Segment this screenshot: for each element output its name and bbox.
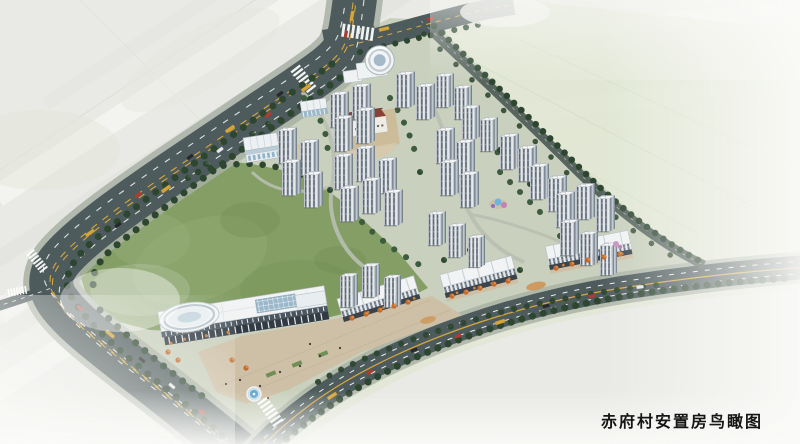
tower-cluster-center bbox=[334, 146, 403, 227]
tower-cluster-top-left bbox=[330, 84, 375, 153]
caption-title: 赤府村安置房鸟瞰图 bbox=[601, 408, 763, 432]
site-aerial-svg bbox=[0, 0, 800, 444]
utility-shed-2 bbox=[243, 133, 280, 163]
aerial-rendering: 赤府村安置房鸟瞰图 bbox=[0, 0, 800, 444]
